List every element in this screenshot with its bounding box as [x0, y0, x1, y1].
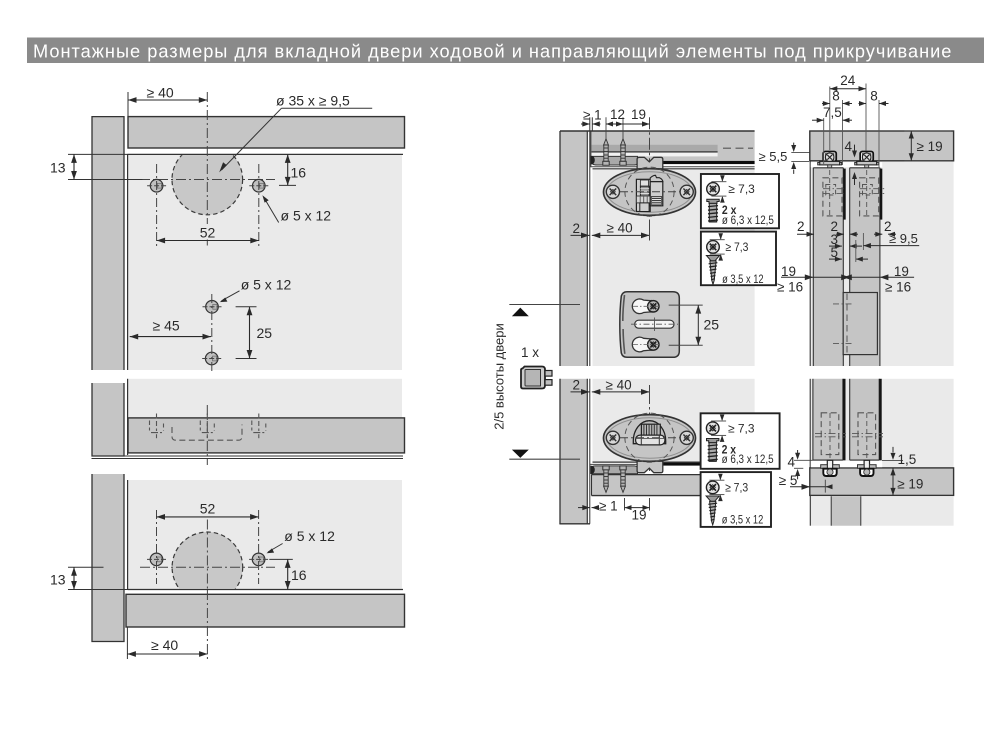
svg-text:19: 19 [894, 264, 909, 279]
svg-text:4: 4 [845, 139, 853, 154]
svg-text:≥ 19: ≥ 19 [897, 477, 923, 492]
svg-text:≥ 40: ≥ 40 [607, 221, 633, 236]
svg-text:≥ 16: ≥ 16 [885, 280, 911, 295]
svg-text:25: 25 [704, 317, 720, 333]
svg-text:ø 35 x ≥ 9,5: ø 35 x ≥ 9,5 [276, 93, 350, 109]
svg-text:16: 16 [291, 165, 307, 181]
svg-text:2: 2 [797, 219, 805, 234]
svg-text:2/5 высоты двери: 2/5 высоты двери [492, 323, 507, 430]
svg-text:13: 13 [50, 572, 66, 588]
svg-text:≥ 40: ≥ 40 [606, 378, 632, 393]
svg-text:2: 2 [573, 378, 581, 393]
svg-text:2: 2 [573, 221, 581, 236]
svg-text:19: 19 [781, 264, 796, 279]
svg-text:≥ 7,3: ≥ 7,3 [728, 422, 755, 436]
svg-text:13: 13 [50, 160, 66, 176]
svg-text:25: 25 [257, 325, 273, 341]
svg-text:≥ 9,5: ≥ 9,5 [889, 231, 918, 246]
svg-text:52: 52 [200, 225, 216, 241]
svg-text:19: 19 [631, 107, 646, 122]
svg-text:Монтажные размеры для вкладной: Монтажные размеры для вкладной двери ход… [33, 42, 952, 62]
svg-text:16: 16 [291, 567, 307, 583]
svg-text:24: 24 [840, 73, 856, 88]
svg-text:1,5: 1,5 [898, 452, 917, 467]
svg-text:≥ 40: ≥ 40 [147, 85, 174, 101]
svg-text:8: 8 [832, 89, 840, 104]
svg-text:ø 3,5 x 12: ø 3,5 x 12 [722, 272, 764, 286]
svg-text:ø 3,5 x 12: ø 3,5 x 12 [722, 512, 764, 526]
svg-text:≥ 5: ≥ 5 [779, 473, 798, 488]
svg-text:≥ 1: ≥ 1 [583, 108, 602, 123]
svg-text:8: 8 [870, 89, 878, 104]
svg-text:1 x: 1 x [521, 345, 539, 360]
svg-text:≥ 7,3: ≥ 7,3 [728, 182, 755, 196]
svg-text:≥ 1: ≥ 1 [599, 499, 618, 514]
svg-text:≥ 7,3: ≥ 7,3 [725, 481, 748, 495]
svg-text:≥ 7,3: ≥ 7,3 [725, 240, 748, 254]
svg-text:ø 5 x 12: ø 5 x 12 [241, 277, 292, 293]
svg-text:19: 19 [632, 508, 647, 523]
svg-text:≥ 16: ≥ 16 [777, 280, 803, 295]
svg-text:ø 6,3 x 12,5: ø 6,3 x 12,5 [722, 213, 774, 227]
svg-text:ø 5 x 12: ø 5 x 12 [284, 528, 335, 544]
svg-text:5: 5 [831, 245, 839, 260]
svg-text:≥ 19: ≥ 19 [917, 139, 943, 154]
svg-text:4: 4 [788, 455, 796, 470]
svg-text:ø 5 x 12: ø 5 x 12 [281, 208, 332, 224]
svg-text:7,5: 7,5 [823, 105, 842, 120]
svg-text:≥ 5,5: ≥ 5,5 [759, 149, 788, 164]
svg-text:≥ 40: ≥ 40 [151, 637, 178, 653]
svg-text:52: 52 [200, 501, 216, 517]
svg-text:ø 6,3 x 12,5: ø 6,3 x 12,5 [722, 452, 774, 466]
svg-text:≥ 45: ≥ 45 [153, 318, 180, 334]
svg-text:12: 12 [610, 107, 625, 122]
